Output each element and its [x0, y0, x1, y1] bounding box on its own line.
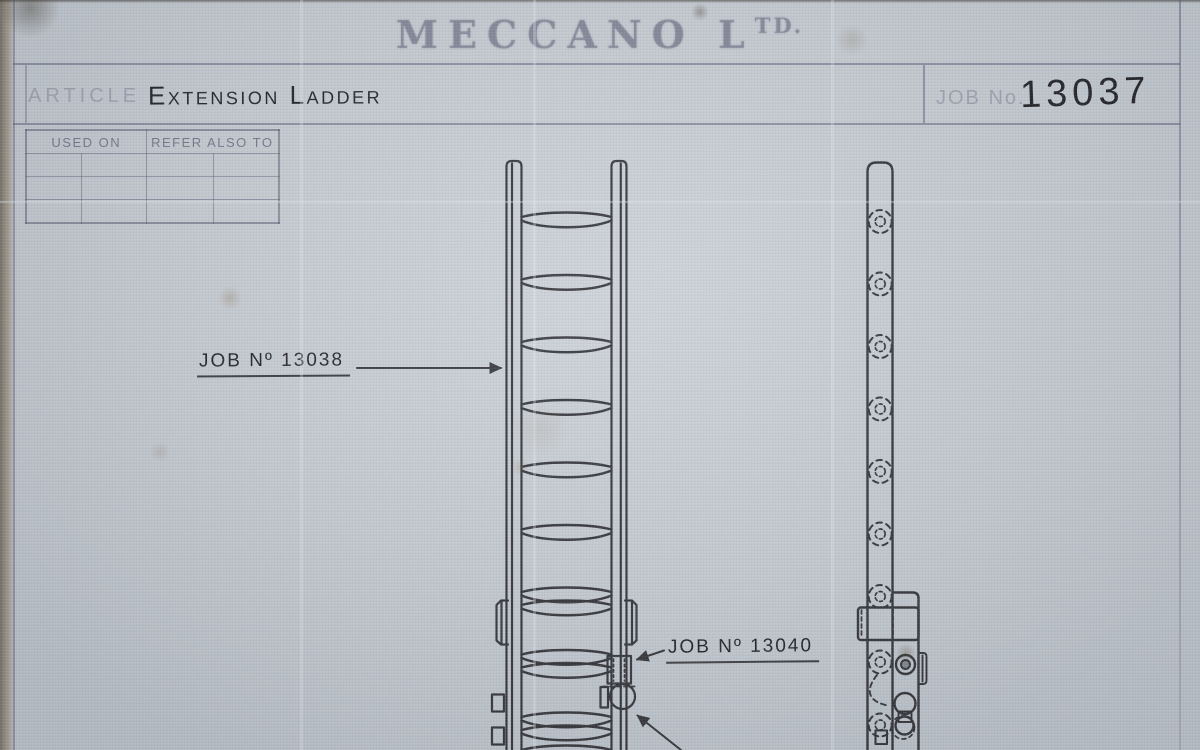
- latch-pulley: [610, 684, 635, 709]
- side-elevation-ladder: [858, 163, 927, 750]
- callout-arrows: [357, 368, 681, 750]
- rung-end-holes-inner: [875, 217, 885, 731]
- clamp-bracket-hidden-lines: [862, 610, 894, 639]
- ladder-drawing: [0, 0, 1200, 750]
- rope-hidden-line: [870, 675, 888, 706]
- latch-assembly: [601, 656, 636, 709]
- callout-arrow-13040: [637, 651, 664, 660]
- front-elevation-ladder: [357, 161, 681, 750]
- foot-tab-lower: [492, 728, 504, 745]
- foot-tab-upper: [492, 695, 504, 712]
- paper-crease: [831, 0, 834, 750]
- side-rail-front: [868, 163, 893, 750]
- callout-arrow-bottom: [638, 716, 682, 750]
- drawing-sheet: MECCANO LTD. ARTICLE Extension Ladder JO…: [0, 0, 1200, 750]
- paper-crease: [533, 0, 536, 750]
- paper-crease: [0, 201, 1200, 203]
- paper-crease: [300, 0, 303, 750]
- ladder-left-rail: [507, 161, 522, 750]
